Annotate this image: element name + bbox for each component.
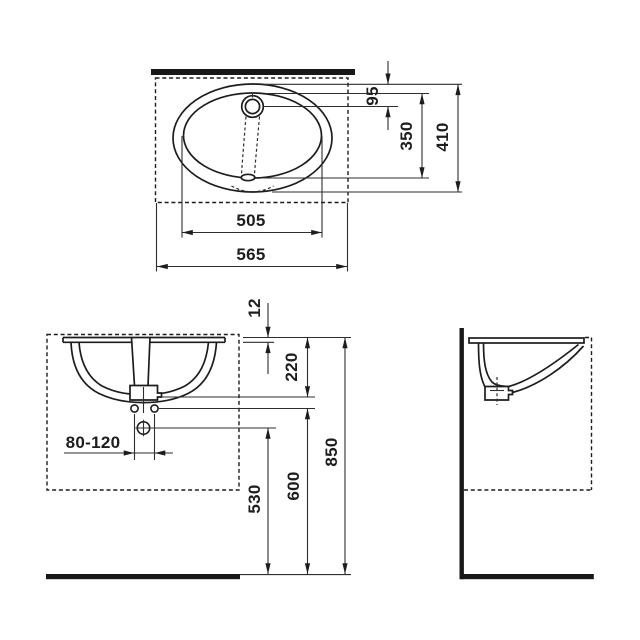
drawing-canvas: 95 350 410 505 565 [0, 0, 640, 640]
floor-line-side [460, 574, 594, 579]
dim-505-label: 505 [236, 211, 265, 230]
arrow-down-icon [385, 74, 390, 85]
arrow-up-icon [305, 409, 310, 420]
arrow-left-icon [155, 450, 166, 455]
dim-350: 350 [397, 94, 425, 179]
fixing-hole-left [131, 405, 138, 412]
dim-505: 505 [182, 211, 322, 235]
arrow-right-icon [336, 264, 347, 269]
arrow-down-icon [455, 181, 460, 192]
arrow-up-icon [385, 107, 390, 118]
dim-565: 565 [157, 245, 347, 269]
arrow-left-icon [157, 264, 168, 269]
bowl-sweep-inner [509, 345, 579, 387]
floor-line [46, 574, 240, 579]
dim-410-label: 410 [433, 122, 452, 151]
drain-outlet [130, 386, 162, 401]
basin-back-inner [484, 343, 509, 387]
bowl-sweep-outer [513, 346, 584, 393]
dim-600-label: 600 [284, 471, 303, 500]
dim-530: 530 [245, 428, 271, 574]
dim-220-label: 220 [282, 352, 301, 381]
arrow-down-icon [265, 563, 270, 574]
dim-80-120: 80-120 [64, 433, 173, 456]
arrow-down-icon [305, 386, 310, 397]
arrow-up-icon [342, 338, 347, 349]
washbasin-technical-drawing: 95 350 410 505 565 [0, 0, 640, 640]
arrow-up-icon [265, 428, 270, 439]
dim-12-label: 12 [245, 298, 264, 318]
dim-410: 410 [433, 84, 461, 192]
dim-850-label: 850 [322, 437, 341, 466]
side-view [460, 328, 594, 579]
dim-350-label: 350 [397, 121, 416, 150]
dim-600: 600 [284, 409, 310, 575]
arrow-up-icon [455, 84, 460, 95]
overflow-column [132, 338, 151, 386]
installation-dashed-outline-side [464, 338, 592, 491]
fixing-hole-right [151, 405, 158, 412]
overflow-hole [241, 174, 255, 180]
arrow-right-icon [124, 450, 135, 455]
wall-line-side [460, 328, 464, 579]
front-view: 12 220 80-120 530 600 [46, 298, 351, 579]
dim-12: 12 [245, 298, 271, 374]
dim-80-120-label: 80-120 [66, 433, 121, 452]
arrow-down-icon [305, 563, 310, 574]
rim-plate [63, 338, 225, 343]
dim-220: 220 [282, 338, 310, 398]
waste-pipe-crosshair [135, 420, 151, 436]
drain-outlet-side [485, 387, 513, 401]
arrow-up-icon [265, 342, 270, 353]
dim-95-label: 95 [363, 86, 382, 106]
dim-530-label: 530 [245, 484, 264, 513]
rim-plate-side [469, 338, 584, 343]
arrow-up-icon [419, 94, 424, 105]
wall-line [151, 69, 355, 75]
arrow-down-icon [342, 563, 347, 574]
arrow-left-icon [182, 230, 193, 235]
arrow-right-icon [311, 230, 322, 235]
dim-565-label: 565 [236, 245, 265, 264]
dim-850: 850 [322, 338, 348, 575]
arrow-down-icon [419, 167, 424, 178]
dim-95: 95 [363, 61, 391, 130]
arrow-up-icon [305, 338, 310, 349]
arrow-down-icon [265, 327, 270, 338]
top-view: 95 350 410 505 565 [151, 61, 462, 272]
